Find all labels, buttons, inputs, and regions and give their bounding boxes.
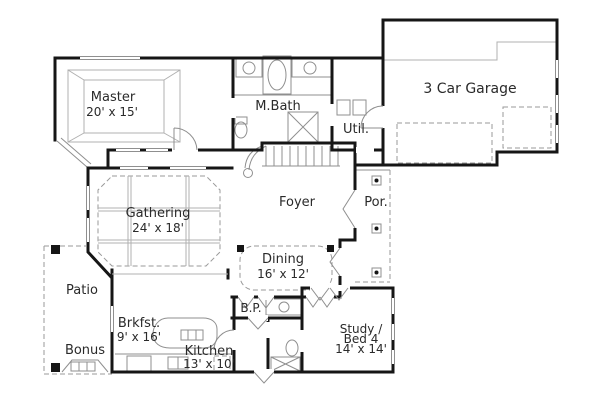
sink-icon	[243, 62, 255, 74]
stairs-newel	[244, 169, 253, 178]
room-label-patio: Patio	[66, 283, 98, 298]
porch-column-dot	[375, 179, 379, 183]
room-label-foyer: Foyer	[279, 195, 316, 210]
room-label-breakfast: Brkfst.	[118, 316, 160, 331]
range-icon	[127, 356, 151, 371]
room-dims-gathering: 24' x 18'	[132, 221, 184, 235]
shower-x-icon	[288, 112, 318, 142]
cooktop-burners	[188, 330, 196, 340]
shower-x-icon-2	[271, 357, 300, 371]
bp-sink-icon	[279, 302, 289, 312]
left-wall	[88, 168, 112, 372]
room-label-garage: 3 Car Garage	[423, 81, 516, 97]
room-dims-dining: 16' x 12'	[257, 267, 309, 281]
dryer-icon	[353, 100, 366, 115]
floor-plan-svg: Master 20' x 15' M.Bath Util. 3 Car Gara…	[0, 0, 600, 401]
room-label-bonus: Bonus	[65, 343, 105, 358]
patio-post	[51, 245, 60, 254]
room-label-util: Util.	[343, 122, 369, 137]
window-seat-dividers	[79, 362, 87, 371]
room-label-gathering: Gathering	[126, 206, 191, 221]
garage-attic-line	[383, 42, 557, 60]
gallery-column-2	[327, 245, 334, 252]
floor-plan: Master 20' x 15' M.Bath Util. 3 Car Gara…	[0, 0, 600, 401]
cooktop-icon	[181, 330, 203, 340]
window-seat-icon	[71, 362, 95, 371]
room-labels: Master 20' x 15' M.Bath Util. 3 Car Gara…	[65, 81, 517, 371]
room-label-bp: B.P.	[240, 301, 261, 315]
porch-column-dot-2	[375, 227, 379, 231]
door-arc-master	[174, 128, 197, 150]
room-dims-kitchen: 13' x 10'	[183, 357, 235, 371]
room-label-master: Master	[91, 90, 136, 105]
room-dims-breakfast: 9' x 16'	[117, 330, 161, 344]
room-label-porch: Por.	[364, 195, 388, 210]
garage-storage-dashed	[397, 123, 492, 163]
tub-icon	[268, 60, 286, 90]
room-label-mbath: M.Bath	[255, 99, 301, 114]
toilet-icon-2	[286, 340, 298, 356]
sink-icon-2	[304, 62, 316, 74]
tub-alcove	[263, 56, 291, 94]
room-label-dining: Dining	[262, 252, 304, 267]
garage-storage-dashed-2	[503, 107, 551, 148]
room-dims-master: 20' x 15'	[86, 105, 138, 119]
room-dims-study: 14' x 14'	[335, 342, 387, 356]
patio-post-2	[51, 363, 60, 372]
stairs-treads	[262, 146, 340, 166]
washer-icon	[337, 100, 350, 115]
toilet-tank	[235, 117, 247, 124]
porch-column-dot-3	[375, 271, 379, 275]
gallery-column	[237, 245, 244, 252]
